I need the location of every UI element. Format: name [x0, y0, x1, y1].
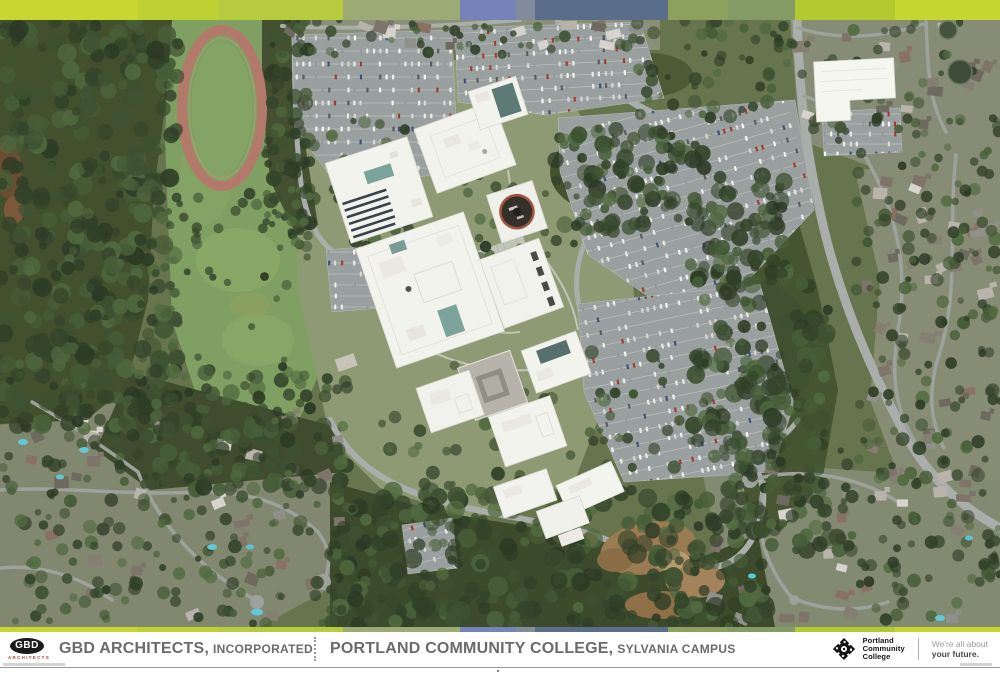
presentation-board: GBD ARCHITECTS GBD ARCHITECTS,INCORPORAT…	[0, 0, 1000, 676]
tagline-light: We're all about	[932, 639, 988, 649]
pcc-line-3: College	[863, 653, 905, 661]
firm-name-main: GBD ARCHITECTS,	[59, 640, 209, 657]
banner-stripe	[795, 0, 895, 20]
firm-name: GBD ARCHITECTS,INCORPORATED	[59, 640, 313, 658]
bottom-margin	[0, 667, 1000, 676]
pcc-divider	[918, 638, 919, 660]
footer: GBD ARCHITECTS GBD ARCHITECTS,INCORPORAT…	[0, 632, 1000, 667]
pcc-brand-block: Portland Community College We're all abo…	[832, 637, 1000, 661]
footer-divider	[314, 637, 316, 661]
banner-stripe	[343, 0, 460, 20]
top-color-band	[0, 0, 1000, 20]
pcc-tagline: We're all about your future.	[932, 639, 988, 659]
fine-print-right	[960, 663, 992, 666]
project-title: PORTLAND COMMUNITY COLLEGE,SYLVANIA CAMP…	[330, 640, 832, 658]
gbd-architects-logo: GBD ARCHITECTS	[8, 638, 46, 660]
dot-artifact	[497, 670, 499, 672]
banner-stripe	[516, 0, 535, 20]
fine-print-left	[3, 663, 65, 666]
tagline-bold: your future.	[932, 649, 988, 659]
pcc-diamond-logo	[832, 637, 856, 661]
banner-stripe	[138, 0, 218, 20]
project-name: PORTLAND COMMUNITY COLLEGE,	[330, 640, 613, 657]
banner-stripe	[218, 0, 343, 20]
pcc-org-name: Portland Community College	[863, 637, 905, 661]
banner-stripe	[668, 0, 728, 20]
gbd-logo-subtitle: ARCHITECTS	[8, 655, 46, 660]
banner-stripe	[535, 0, 668, 20]
aerial-photo-svg	[0, 20, 1000, 627]
banner-stripe	[728, 0, 795, 20]
running-track	[182, 30, 262, 186]
banner-stripe	[0, 0, 138, 20]
aerial-photo	[0, 20, 1000, 627]
footer-center: PORTLAND COMMUNITY COLLEGE,SYLVANIA CAMP…	[330, 640, 832, 658]
gbd-logo-mark: GBD	[10, 638, 44, 654]
firm-name-suffix: INCORPORATED	[213, 642, 313, 656]
banner-stripe	[895, 0, 1000, 20]
footer-left: GBD ARCHITECTS GBD ARCHITECTS,INCORPORAT…	[0, 638, 314, 660]
banner-stripe	[460, 0, 516, 20]
project-campus: SYLVANIA CAMPUS	[617, 642, 735, 656]
